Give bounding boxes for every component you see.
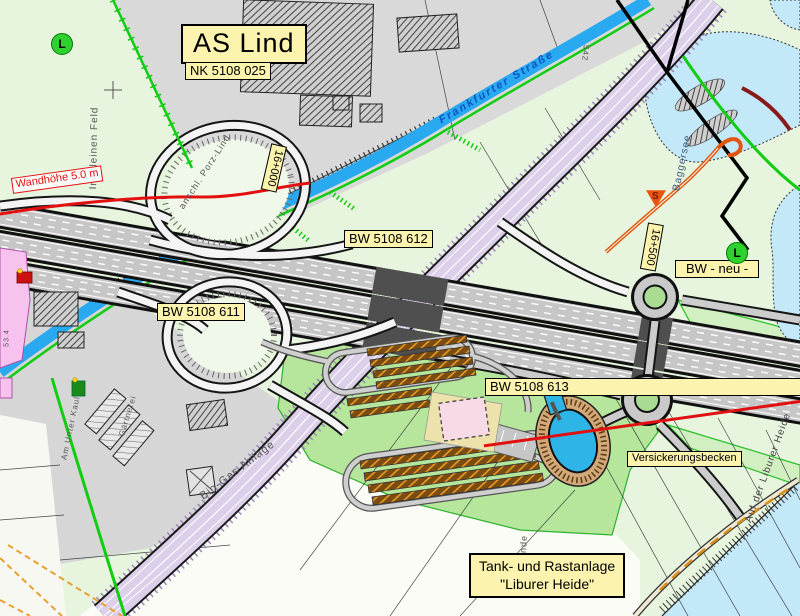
l-marker-letter: L (58, 37, 65, 51)
bw-611-label: BW 5108 611 (157, 303, 245, 321)
rest-area-label-line2: "Liburer Heide" (479, 576, 615, 594)
l-marker-icon: L (726, 242, 748, 264)
versickerungsbecken-label: Versickerungsbecken (627, 451, 742, 467)
roundabout-north (631, 273, 679, 321)
interchange-title-label: AS Lind (181, 24, 307, 64)
l-marker-letter: L (733, 246, 740, 260)
elevation-53-4-label: 53.4 (4, 329, 13, 347)
l-marker-icon: L (51, 33, 73, 55)
elevation-542-label: 542 (579, 44, 591, 61)
nk-number-label: NK 5108 025 (185, 62, 271, 80)
bw-neu-label: BW - neu - (675, 260, 759, 278)
rest-area-label-line1: Tank- und Rastanlage (479, 558, 615, 576)
gauge-triangle-icon: S (646, 190, 666, 207)
plan-map: AS Lind NK 5108 025 BW 5108 612 BW 5108 … (0, 0, 800, 616)
rest-area-label: Tank- und Rastanlage "Liburer Heide" (469, 553, 625, 598)
bw-612-label: BW 5108 612 (344, 230, 433, 248)
gauge-letter: S (652, 191, 659, 202)
map-graphic (0, 0, 800, 616)
bw-613-label: BW 5108 613 (485, 378, 800, 396)
